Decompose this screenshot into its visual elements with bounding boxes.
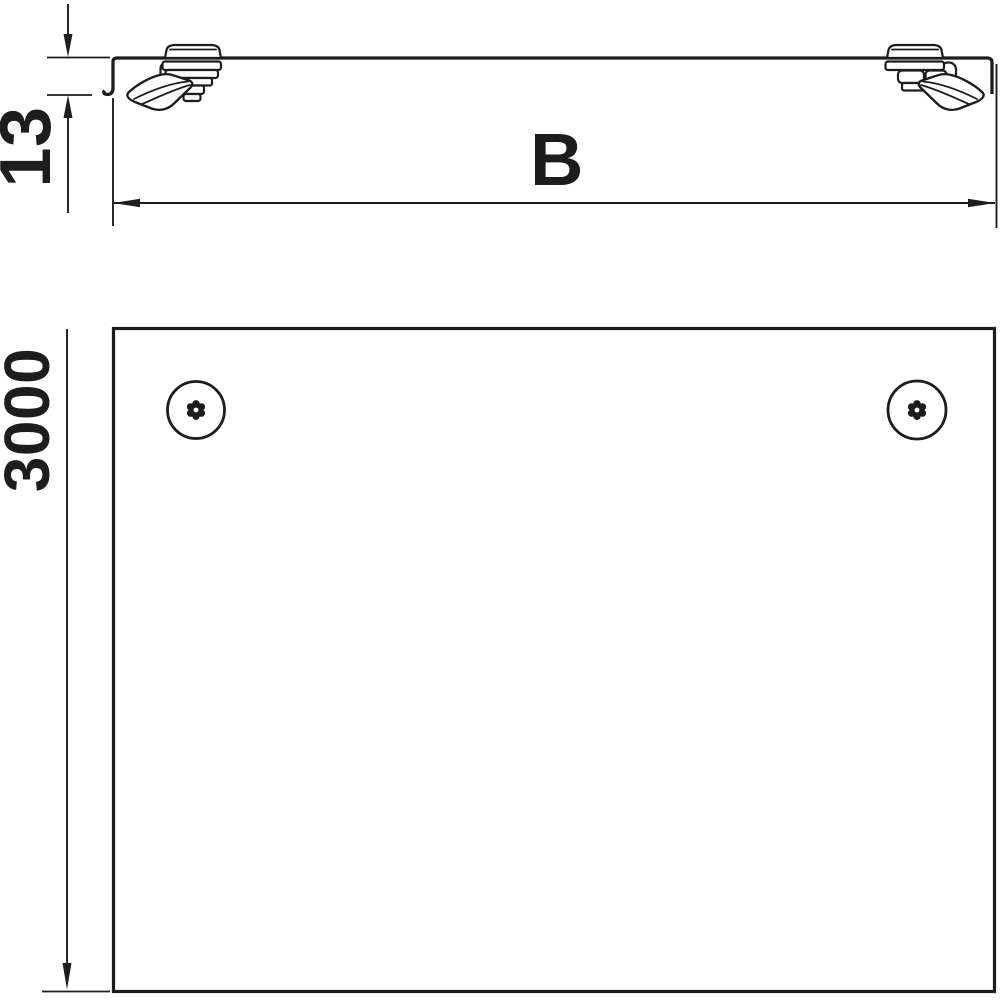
fastener-step-3	[184, 94, 201, 101]
fastener-wing	[919, 74, 984, 110]
fastener-wing	[127, 74, 192, 110]
cover-plan-outline	[114, 329, 995, 992]
height-dimension-label: 13	[0, 67, 62, 227]
width-dimension-label: B	[497, 119, 617, 199]
arrowhead-right-icon	[968, 199, 995, 207]
right-turnbuckle-fastener	[886, 45, 984, 110]
fastener-collar	[163, 62, 222, 71]
technical-drawing: 13 B 3000	[0, 0, 1000, 1000]
fastener-cap	[165, 45, 221, 58]
arrowhead-down-icon	[63, 963, 72, 990]
fastener-collar	[886, 62, 945, 71]
cover-profile-outline	[104, 58, 992, 95]
left-turnbuckle-fastener	[127, 45, 221, 110]
plan-view	[42, 329, 995, 992]
arrowhead-down-icon	[64, 34, 73, 57]
length-dimension-label: 3000	[0, 310, 62, 530]
fastener-cap	[887, 45, 943, 58]
arrowhead-left-icon	[113, 199, 140, 207]
